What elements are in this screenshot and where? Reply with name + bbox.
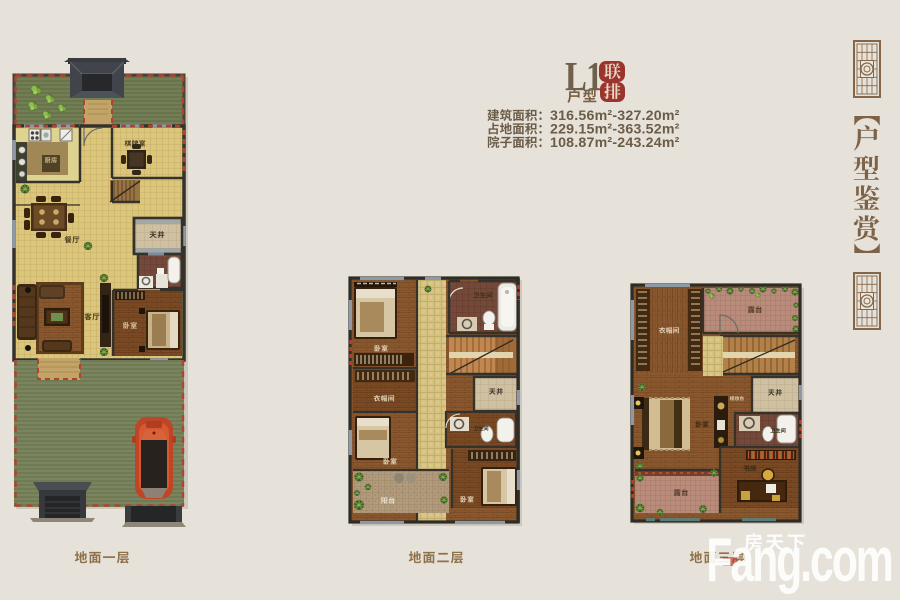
svg-text:Fang.com: Fang.com <box>706 526 892 595</box>
svg-text:108.87m²-243.24m²: 108.87m²-243.24m² <box>550 135 680 151</box>
